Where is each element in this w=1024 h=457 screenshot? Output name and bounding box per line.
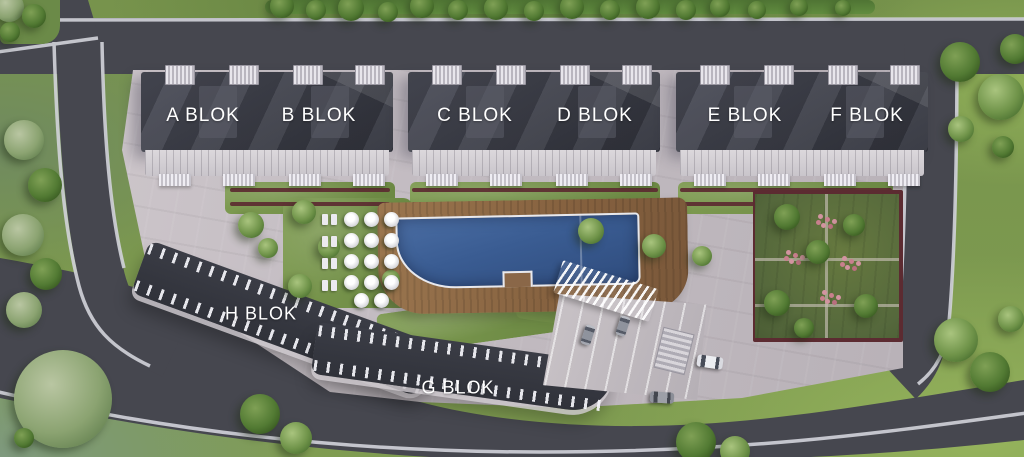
roof-terrace	[764, 65, 794, 85]
tree	[806, 240, 830, 264]
roof-terrace	[496, 65, 526, 85]
umbrella	[364, 254, 379, 269]
tree	[970, 352, 1010, 392]
flower-bed	[786, 250, 791, 255]
tree	[600, 0, 620, 20]
entrance-stairs	[426, 174, 458, 186]
block-label-a[interactable]: A BLOK	[166, 105, 240, 127]
sun-lounger	[322, 236, 328, 247]
umbrella	[354, 293, 369, 308]
tree	[1000, 34, 1024, 64]
pool-step	[502, 271, 532, 288]
tree	[2, 214, 44, 256]
entrance-stairs	[556, 174, 588, 186]
umbrella	[384, 275, 399, 290]
tree	[28, 168, 62, 202]
umbrella	[364, 212, 379, 227]
umbrella	[344, 275, 359, 290]
tree	[238, 212, 264, 238]
sun-lounger	[331, 280, 337, 291]
entrance-stairs	[888, 174, 920, 186]
building-block-ef	[676, 72, 928, 190]
flower-bed	[818, 214, 823, 219]
sun-lounger	[322, 258, 328, 269]
tree	[578, 218, 604, 244]
umbrella	[344, 254, 359, 269]
roof-terrace	[432, 65, 462, 85]
entrance-stairs	[694, 174, 726, 186]
car-on-road	[650, 391, 675, 404]
block-label-b[interactable]: B BLOK	[282, 105, 357, 127]
roof-terrace	[229, 65, 259, 85]
terrace-row	[680, 150, 924, 176]
tree	[854, 294, 878, 318]
building-block-cd	[408, 72, 660, 190]
tree	[676, 422, 716, 457]
umbrella	[364, 275, 379, 290]
roof-terrace	[293, 65, 323, 85]
roof-terrace	[700, 65, 730, 85]
tree	[22, 4, 46, 28]
tree	[642, 234, 666, 258]
building-block-ab	[141, 72, 393, 190]
block-label-e[interactable]: E BLOK	[708, 105, 783, 127]
umbrella	[344, 212, 359, 227]
entrance-stairs	[353, 174, 385, 186]
tree	[843, 214, 865, 236]
tree	[692, 246, 712, 266]
terrace-row	[412, 150, 656, 176]
tree	[676, 0, 696, 20]
site-plan-rendering: A BLOK B BLOK C BLOK D BLOK E BLOK F BLO…	[0, 0, 1024, 457]
umbrella	[384, 233, 399, 248]
flower-bed	[822, 290, 827, 295]
tree	[288, 274, 312, 298]
umbrella	[364, 233, 379, 248]
tree	[0, 22, 20, 42]
tree	[14, 428, 34, 448]
sun-lounger	[322, 214, 328, 225]
tree	[835, 0, 851, 16]
tree	[948, 116, 974, 142]
tree	[6, 292, 42, 328]
block-label-h[interactable]: H BLOK	[225, 304, 297, 325]
tree	[292, 200, 316, 224]
entrance-stairs	[289, 174, 321, 186]
umbrella	[384, 212, 399, 227]
roof-terrace	[560, 65, 590, 85]
entrance-stairs	[620, 174, 652, 186]
sun-lounger	[331, 214, 337, 225]
tree	[764, 290, 790, 316]
roof-terrace	[622, 65, 652, 85]
tree	[448, 0, 468, 20]
tree	[4, 120, 44, 160]
roof-terrace	[890, 65, 920, 85]
sun-lounger	[331, 258, 337, 269]
block-label-d[interactable]: D BLOK	[557, 105, 633, 127]
roof-terrace	[355, 65, 385, 85]
tree	[978, 74, 1024, 120]
terrace-row	[145, 150, 389, 176]
tree	[934, 318, 978, 362]
block-label-g[interactable]: G BLOK	[421, 378, 494, 399]
tree	[240, 394, 280, 434]
tree	[280, 422, 312, 454]
roof-terrace	[828, 65, 858, 85]
entrance-stairs	[824, 174, 856, 186]
sun-lounger	[322, 280, 328, 291]
roof-terrace	[165, 65, 195, 85]
tree	[306, 0, 326, 20]
entrance-stairs	[159, 174, 191, 186]
tree	[992, 136, 1014, 158]
tree	[524, 1, 544, 21]
garden-path	[825, 194, 828, 338]
tree	[794, 318, 814, 338]
umbrella	[384, 254, 399, 269]
flower-bed	[842, 256, 847, 261]
entrance-stairs	[223, 174, 255, 186]
block-label-f[interactable]: F BLOK	[830, 105, 904, 127]
tree	[940, 42, 980, 82]
tree	[258, 238, 278, 258]
entrance-stairs	[758, 174, 790, 186]
sun-lounger	[331, 236, 337, 247]
block-label-c[interactable]: C BLOK	[437, 105, 513, 127]
tree	[998, 306, 1024, 332]
umbrella	[374, 293, 389, 308]
umbrella	[344, 233, 359, 248]
tree	[748, 1, 766, 19]
tree	[378, 2, 398, 22]
entrance-stairs	[490, 174, 522, 186]
tree	[30, 258, 62, 290]
tree	[774, 204, 800, 230]
